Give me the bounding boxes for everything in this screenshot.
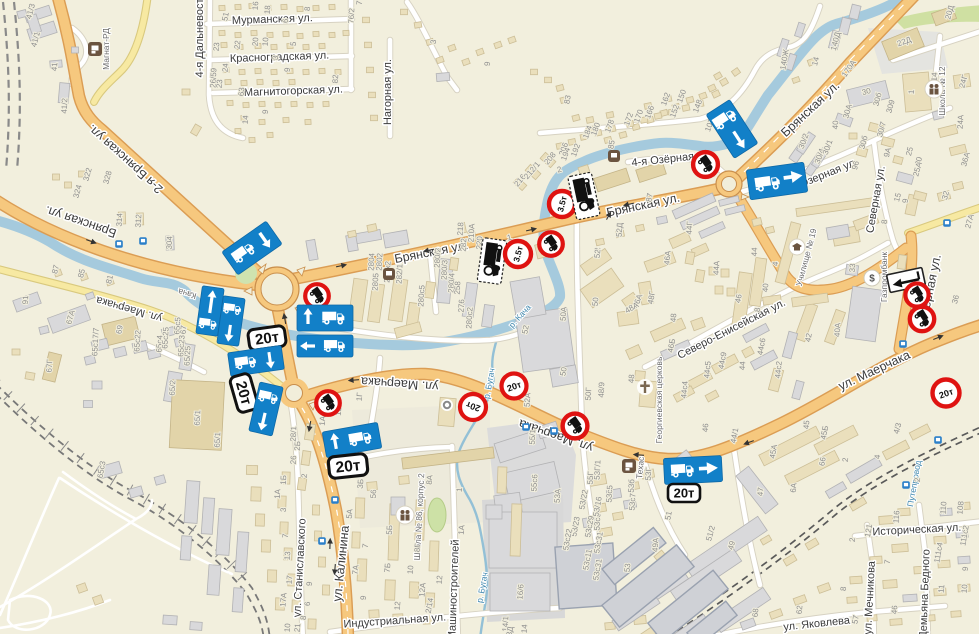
svg-text:$: $ xyxy=(869,274,875,285)
svg-text:282/1: 282/1 xyxy=(394,263,404,284)
svg-text:2804: 2804 xyxy=(367,252,377,271)
svg-text:76/2: 76/2 xyxy=(347,7,357,24)
svg-text:14: 14 xyxy=(241,114,251,124)
svg-text:8А: 8А xyxy=(425,474,435,485)
svg-text:48: 48 xyxy=(627,373,637,383)
svg-text:53Г/1: 53Г/1 xyxy=(592,459,602,480)
svg-text:13: 13 xyxy=(283,550,293,560)
svg-text:10: 10 xyxy=(283,622,293,632)
svg-text:282: 282 xyxy=(459,237,469,251)
svg-text:33: 33 xyxy=(848,263,857,273)
svg-text:12: 12 xyxy=(393,600,403,610)
svg-text:56: 56 xyxy=(369,489,378,499)
svg-text:280с2: 280с2 xyxy=(464,306,474,329)
svg-text:218: 218 xyxy=(456,221,466,235)
svg-text:26: 26 xyxy=(289,455,298,465)
svg-text:40: 40 xyxy=(761,282,771,292)
svg-text:40: 40 xyxy=(831,120,840,130)
svg-text:53с7: 53с7 xyxy=(628,492,638,510)
svg-text:44: 44 xyxy=(750,247,759,257)
svg-text:7Б: 7Б xyxy=(383,563,393,573)
svg-text:62: 62 xyxy=(795,604,805,614)
svg-text:53с5: 53с5 xyxy=(605,484,615,502)
svg-text:312: 312 xyxy=(134,213,144,227)
svg-text:65/1: 65/1 xyxy=(193,409,203,426)
svg-text:49А: 49А xyxy=(651,537,661,552)
svg-text:41: 41 xyxy=(50,61,60,71)
svg-text:24А: 24А xyxy=(956,114,966,129)
svg-text:10: 10 xyxy=(406,564,416,574)
svg-text:7А: 7А xyxy=(351,564,361,575)
svg-text:53: 53 xyxy=(623,562,633,572)
svg-text:17А: 17А xyxy=(278,592,288,608)
svg-text:10: 10 xyxy=(960,583,970,593)
svg-text:314: 314 xyxy=(115,212,125,226)
svg-text:65с25: 65с25 xyxy=(160,326,170,349)
svg-text:67Г: 67Г xyxy=(45,358,55,372)
svg-text:52Д: 52Д xyxy=(615,222,625,237)
svg-text:55с6: 55с6 xyxy=(530,473,540,491)
svg-text:5А: 5А xyxy=(345,508,355,519)
svg-text:65/25: 65/25 xyxy=(182,345,192,366)
svg-text:1А: 1А xyxy=(273,488,283,499)
svg-text:258: 258 xyxy=(453,280,463,294)
svg-text:41/2: 41/2 xyxy=(60,97,70,114)
svg-text:12: 12 xyxy=(435,574,445,584)
svg-text:53б: 53б xyxy=(627,478,637,492)
svg-text:20: 20 xyxy=(251,36,261,46)
svg-text:63: 63 xyxy=(237,86,247,96)
svg-text:46А: 46А xyxy=(662,250,672,266)
svg-text:82: 82 xyxy=(331,74,340,84)
svg-text:45: 45 xyxy=(802,419,812,429)
svg-text:2805: 2805 xyxy=(371,272,381,291)
svg-text:11: 11 xyxy=(937,584,947,594)
svg-text:53Г: 53Г xyxy=(644,466,654,480)
svg-text:23: 23 xyxy=(212,41,222,51)
svg-text:Магнат-РД: Магнат-РД xyxy=(101,28,111,70)
svg-text:Георгиевская церковь: Георгиевская церковь xyxy=(654,356,664,443)
svg-text:108: 108 xyxy=(955,500,965,515)
svg-text:1Г: 1Г xyxy=(355,391,365,401)
svg-text:50: 50 xyxy=(591,296,601,306)
svg-text:304: 304 xyxy=(165,235,175,249)
svg-text:12А: 12А xyxy=(417,582,427,598)
svg-text:21: 21 xyxy=(293,622,303,632)
svg-text:44с5: 44с5 xyxy=(702,360,713,379)
svg-text:44А: 44А xyxy=(712,260,722,275)
svg-text:24: 24 xyxy=(221,62,231,72)
svg-text:68: 68 xyxy=(751,607,761,617)
svg-text:5Б: 5Б xyxy=(385,525,394,535)
svg-text:50Г: 50Г xyxy=(584,386,594,400)
svg-text:48: 48 xyxy=(669,312,679,322)
svg-text:10: 10 xyxy=(261,36,271,46)
svg-text:8Г: 8Г xyxy=(413,542,423,552)
svg-text:55/1: 55/1 xyxy=(528,428,538,445)
svg-text:22: 22 xyxy=(233,39,243,49)
svg-text:91: 91 xyxy=(21,295,30,305)
svg-text:47: 47 xyxy=(756,486,766,496)
svg-text:65с22: 65с22 xyxy=(132,329,142,352)
svg-text:40А: 40А xyxy=(833,322,843,337)
svg-text:110: 110 xyxy=(938,500,948,514)
svg-text:67: 67 xyxy=(179,324,189,334)
svg-text:65/1: 65/1 xyxy=(213,431,223,448)
svg-text:17: 17 xyxy=(285,574,295,584)
svg-text:18: 18 xyxy=(263,4,273,14)
svg-text:Нагорная ул.: Нагорная ул. xyxy=(382,59,394,125)
svg-text:116: 116 xyxy=(891,509,901,523)
svg-text:65с17/7: 65с17/7 xyxy=(90,327,101,356)
svg-text:1Б: 1Б xyxy=(279,475,288,485)
svg-text:44: 44 xyxy=(738,360,748,370)
svg-text:4-я Дальневост: 4-я Дальневост xyxy=(194,0,206,78)
svg-text:53А: 53А xyxy=(553,488,563,503)
svg-text:3Б: 3Б xyxy=(356,479,366,489)
svg-text:52: 52 xyxy=(593,248,603,258)
svg-text:50А: 50А xyxy=(559,306,569,321)
svg-text:16: 16 xyxy=(251,0,261,10)
svg-text:65/2: 65/2 xyxy=(168,379,178,396)
svg-text:6А: 6А xyxy=(789,482,799,493)
svg-text:16/6: 16/6 xyxy=(515,583,525,600)
svg-text:14: 14 xyxy=(520,623,530,633)
svg-text:44с4: 44с4 xyxy=(679,380,690,399)
svg-text:44с2: 44с2 xyxy=(773,360,784,379)
svg-text:1А: 1А xyxy=(457,524,467,535)
svg-text:28/1: 28/1 xyxy=(289,425,299,442)
svg-text:23: 23 xyxy=(215,78,225,88)
svg-text:44Г: 44Г xyxy=(685,220,695,234)
svg-text:46: 46 xyxy=(890,604,900,614)
svg-text:46: 46 xyxy=(701,422,711,432)
svg-text:280с5: 280с5 xyxy=(416,284,426,307)
svg-text:48/9: 48/9 xyxy=(597,381,607,398)
